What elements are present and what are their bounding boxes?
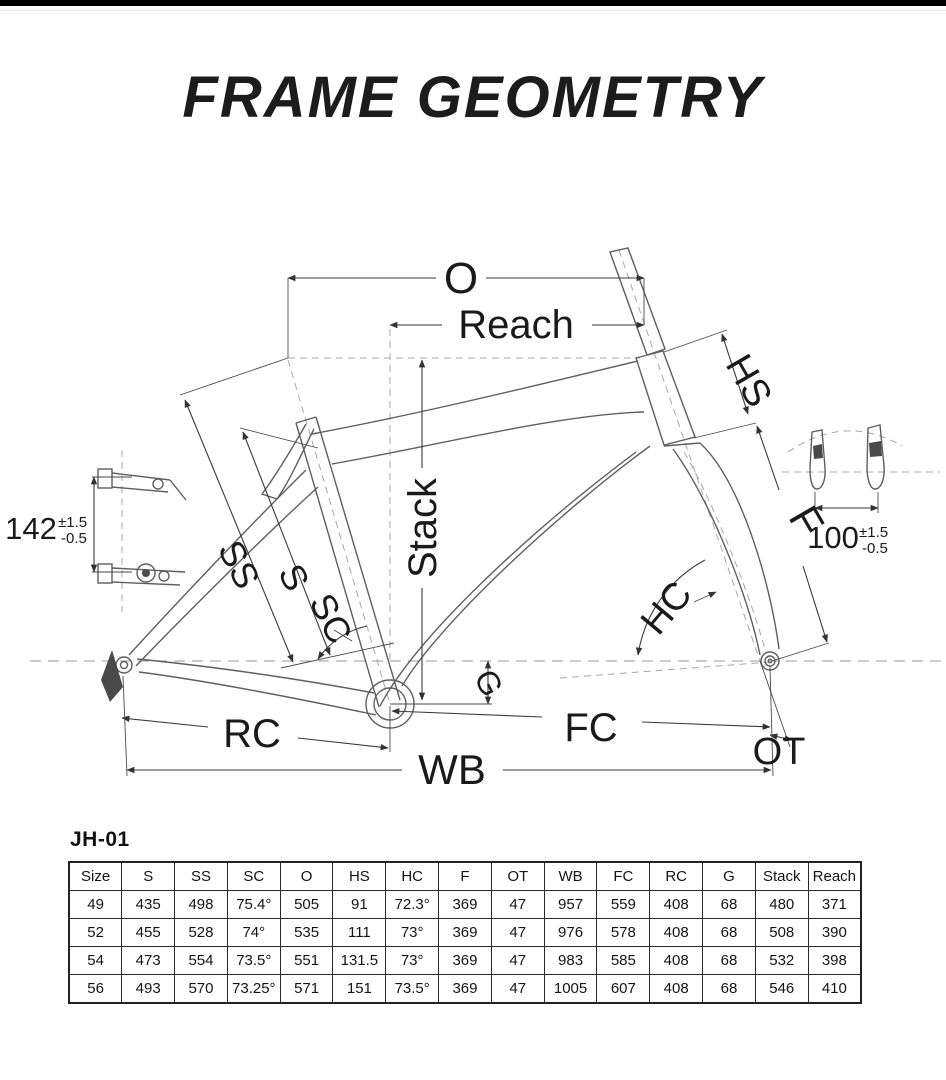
table-cell: 54	[69, 947, 122, 975]
table-cell: 75.4°	[227, 891, 280, 919]
table-cell: 976	[544, 919, 597, 947]
table-cell: 578	[597, 919, 650, 947]
fork-blade	[700, 443, 779, 649]
rear-hub-detail	[92, 469, 186, 585]
table-cell: 455	[122, 919, 175, 947]
table-cell: 535	[280, 919, 333, 947]
col-header-sc: SC	[227, 862, 280, 891]
table-cell: 410	[808, 975, 861, 1004]
col-header-hs: HS	[333, 862, 386, 891]
dim-label-stack: Stack	[401, 477, 445, 578]
col-header-rc: RC	[650, 862, 703, 891]
table-cell: 91	[333, 891, 386, 919]
col-header-reach: Reach	[808, 862, 861, 891]
top-tube	[312, 361, 638, 434]
table-cell: 73°	[386, 919, 439, 947]
table-cell: 68	[703, 891, 756, 919]
table-cell: 68	[703, 947, 756, 975]
table-cell: 47	[491, 891, 544, 919]
table-cell: 151	[333, 975, 386, 1004]
table-cell: 493	[122, 975, 175, 1004]
table-cell: 983	[544, 947, 597, 975]
table-cell: 73.5°	[227, 947, 280, 975]
dim-label-hs: HS	[717, 348, 780, 415]
page: { "page": { "title": "FRAME GEOMETRY" },…	[0, 0, 946, 1080]
head-tube	[636, 351, 695, 445]
dim-label-rc: RC	[223, 712, 281, 756]
table-cell: 1005	[544, 975, 597, 1004]
col-header-ss: SS	[175, 862, 228, 891]
col-header-wb: WB	[544, 862, 597, 891]
col-header-stack: Stack	[755, 862, 808, 891]
table-cell: 73°	[386, 947, 439, 975]
table-cell: 47	[491, 947, 544, 975]
col-header-o: O	[280, 862, 333, 891]
dim-label-ot: OT	[753, 731, 806, 773]
table-row: 5649357073.25°57115173.5°369471005607408…	[69, 975, 861, 1004]
table-cell: 528	[175, 919, 228, 947]
col-header-ot: OT	[491, 862, 544, 891]
col-header-s: S	[122, 862, 175, 891]
rear-hub-tol-minus: -0.5	[61, 530, 87, 547]
rear-hub-value: 142	[5, 511, 57, 546]
dim-label-o: O	[444, 254, 478, 303]
table-cell: 47	[491, 975, 544, 1004]
geometry-table: SizeSSSSCOHSHCFOTWBFCRCGStackReach 49435…	[68, 861, 862, 1004]
table-cell: 49	[69, 891, 122, 919]
table-cell: 508	[755, 919, 808, 947]
table-cell: 571	[280, 975, 333, 1004]
dim-label-g: G	[467, 664, 510, 703]
front-hub-tol-plus: ±1.5	[859, 524, 888, 541]
steerer-tube	[610, 248, 665, 355]
table-cell: 52	[69, 919, 122, 947]
col-header-f: F	[439, 862, 492, 891]
table-cell: 505	[280, 891, 333, 919]
table-cell: 131.5	[333, 947, 386, 975]
table-cell: 551	[280, 947, 333, 975]
table-cell: 369	[439, 891, 492, 919]
dimension-lines	[122, 278, 829, 776]
col-header-hc: HC	[386, 862, 439, 891]
top-hairline	[0, 10, 946, 11]
table-cell: 473	[122, 947, 175, 975]
rear-dropout	[116, 657, 132, 673]
rear-hub-tol-plus: ±1.5	[58, 514, 87, 531]
table-cell: 559	[597, 891, 650, 919]
table-header-row: SizeSSSSCOHSHCFOTWBFCRCGStackReach	[69, 862, 861, 891]
table-row: 5447355473.5°551131.573°3694798358540868…	[69, 947, 861, 975]
table-cell: 546	[755, 975, 808, 1004]
table-cell: 570	[175, 975, 228, 1004]
front-hub-value: 100	[807, 520, 859, 555]
table-cell: 369	[439, 975, 492, 1004]
table-cell: 68	[703, 975, 756, 1004]
table-cell: 408	[650, 975, 703, 1004]
table-cell: 408	[650, 891, 703, 919]
table-cell: 73.5°	[386, 975, 439, 1004]
model-label: JH-01	[70, 828, 862, 852]
table-cell: 47	[491, 919, 544, 947]
table-cell: 957	[544, 891, 597, 919]
dim-label-fc: FC	[564, 706, 617, 750]
table-cell: 532	[755, 947, 808, 975]
geometry-table-section: JH-01 SizeSSSSCOHSHCFOTWBFCRCGStackReach…	[68, 828, 862, 1004]
col-header-fc: FC	[597, 862, 650, 891]
frame-geometry-diagram: O Reach Stack HS F SS S SC G HC RC FC OT…	[0, 210, 946, 830]
table-cell: 585	[597, 947, 650, 975]
table-cell: 435	[122, 891, 175, 919]
dimension-labels: O Reach Stack HS F SS S SC G HC RC FC OT…	[5, 254, 888, 793]
table-cell: 408	[650, 947, 703, 975]
table-cell: 74°	[227, 919, 280, 947]
table-row: 4943549875.4°5059172.3°36947957559408684…	[69, 891, 861, 919]
table-cell: 554	[175, 947, 228, 975]
table-cell: 498	[175, 891, 228, 919]
table-cell: 371	[808, 891, 861, 919]
table-cell: 390	[808, 919, 861, 947]
table-cell: 398	[808, 947, 861, 975]
col-header-size: Size	[69, 862, 122, 891]
table-cell: 73.25°	[227, 975, 280, 1004]
dim-label-wb: WB	[418, 746, 486, 793]
page-title: FRAME GEOMETRY	[0, 66, 946, 130]
table-cell: 408	[650, 919, 703, 947]
table-cell: 369	[439, 947, 492, 975]
table-cell: 72.3°	[386, 891, 439, 919]
table-cell: 369	[439, 919, 492, 947]
top-black-bar	[0, 0, 946, 6]
table-cell: 56	[69, 975, 122, 1004]
table-cell: 111	[333, 919, 386, 947]
table-row: 5245552874°53511173°36947976578408685083…	[69, 919, 861, 947]
chain-stay	[137, 659, 374, 693]
table-cell: 607	[597, 975, 650, 1004]
table-cell: 480	[755, 891, 808, 919]
dim-label-s: S	[270, 557, 317, 597]
front-hub-tol-minus: -0.5	[862, 540, 888, 557]
table-cell: 68	[703, 919, 756, 947]
col-header-g: G	[703, 862, 756, 891]
dim-label-reach: Reach	[458, 303, 574, 347]
